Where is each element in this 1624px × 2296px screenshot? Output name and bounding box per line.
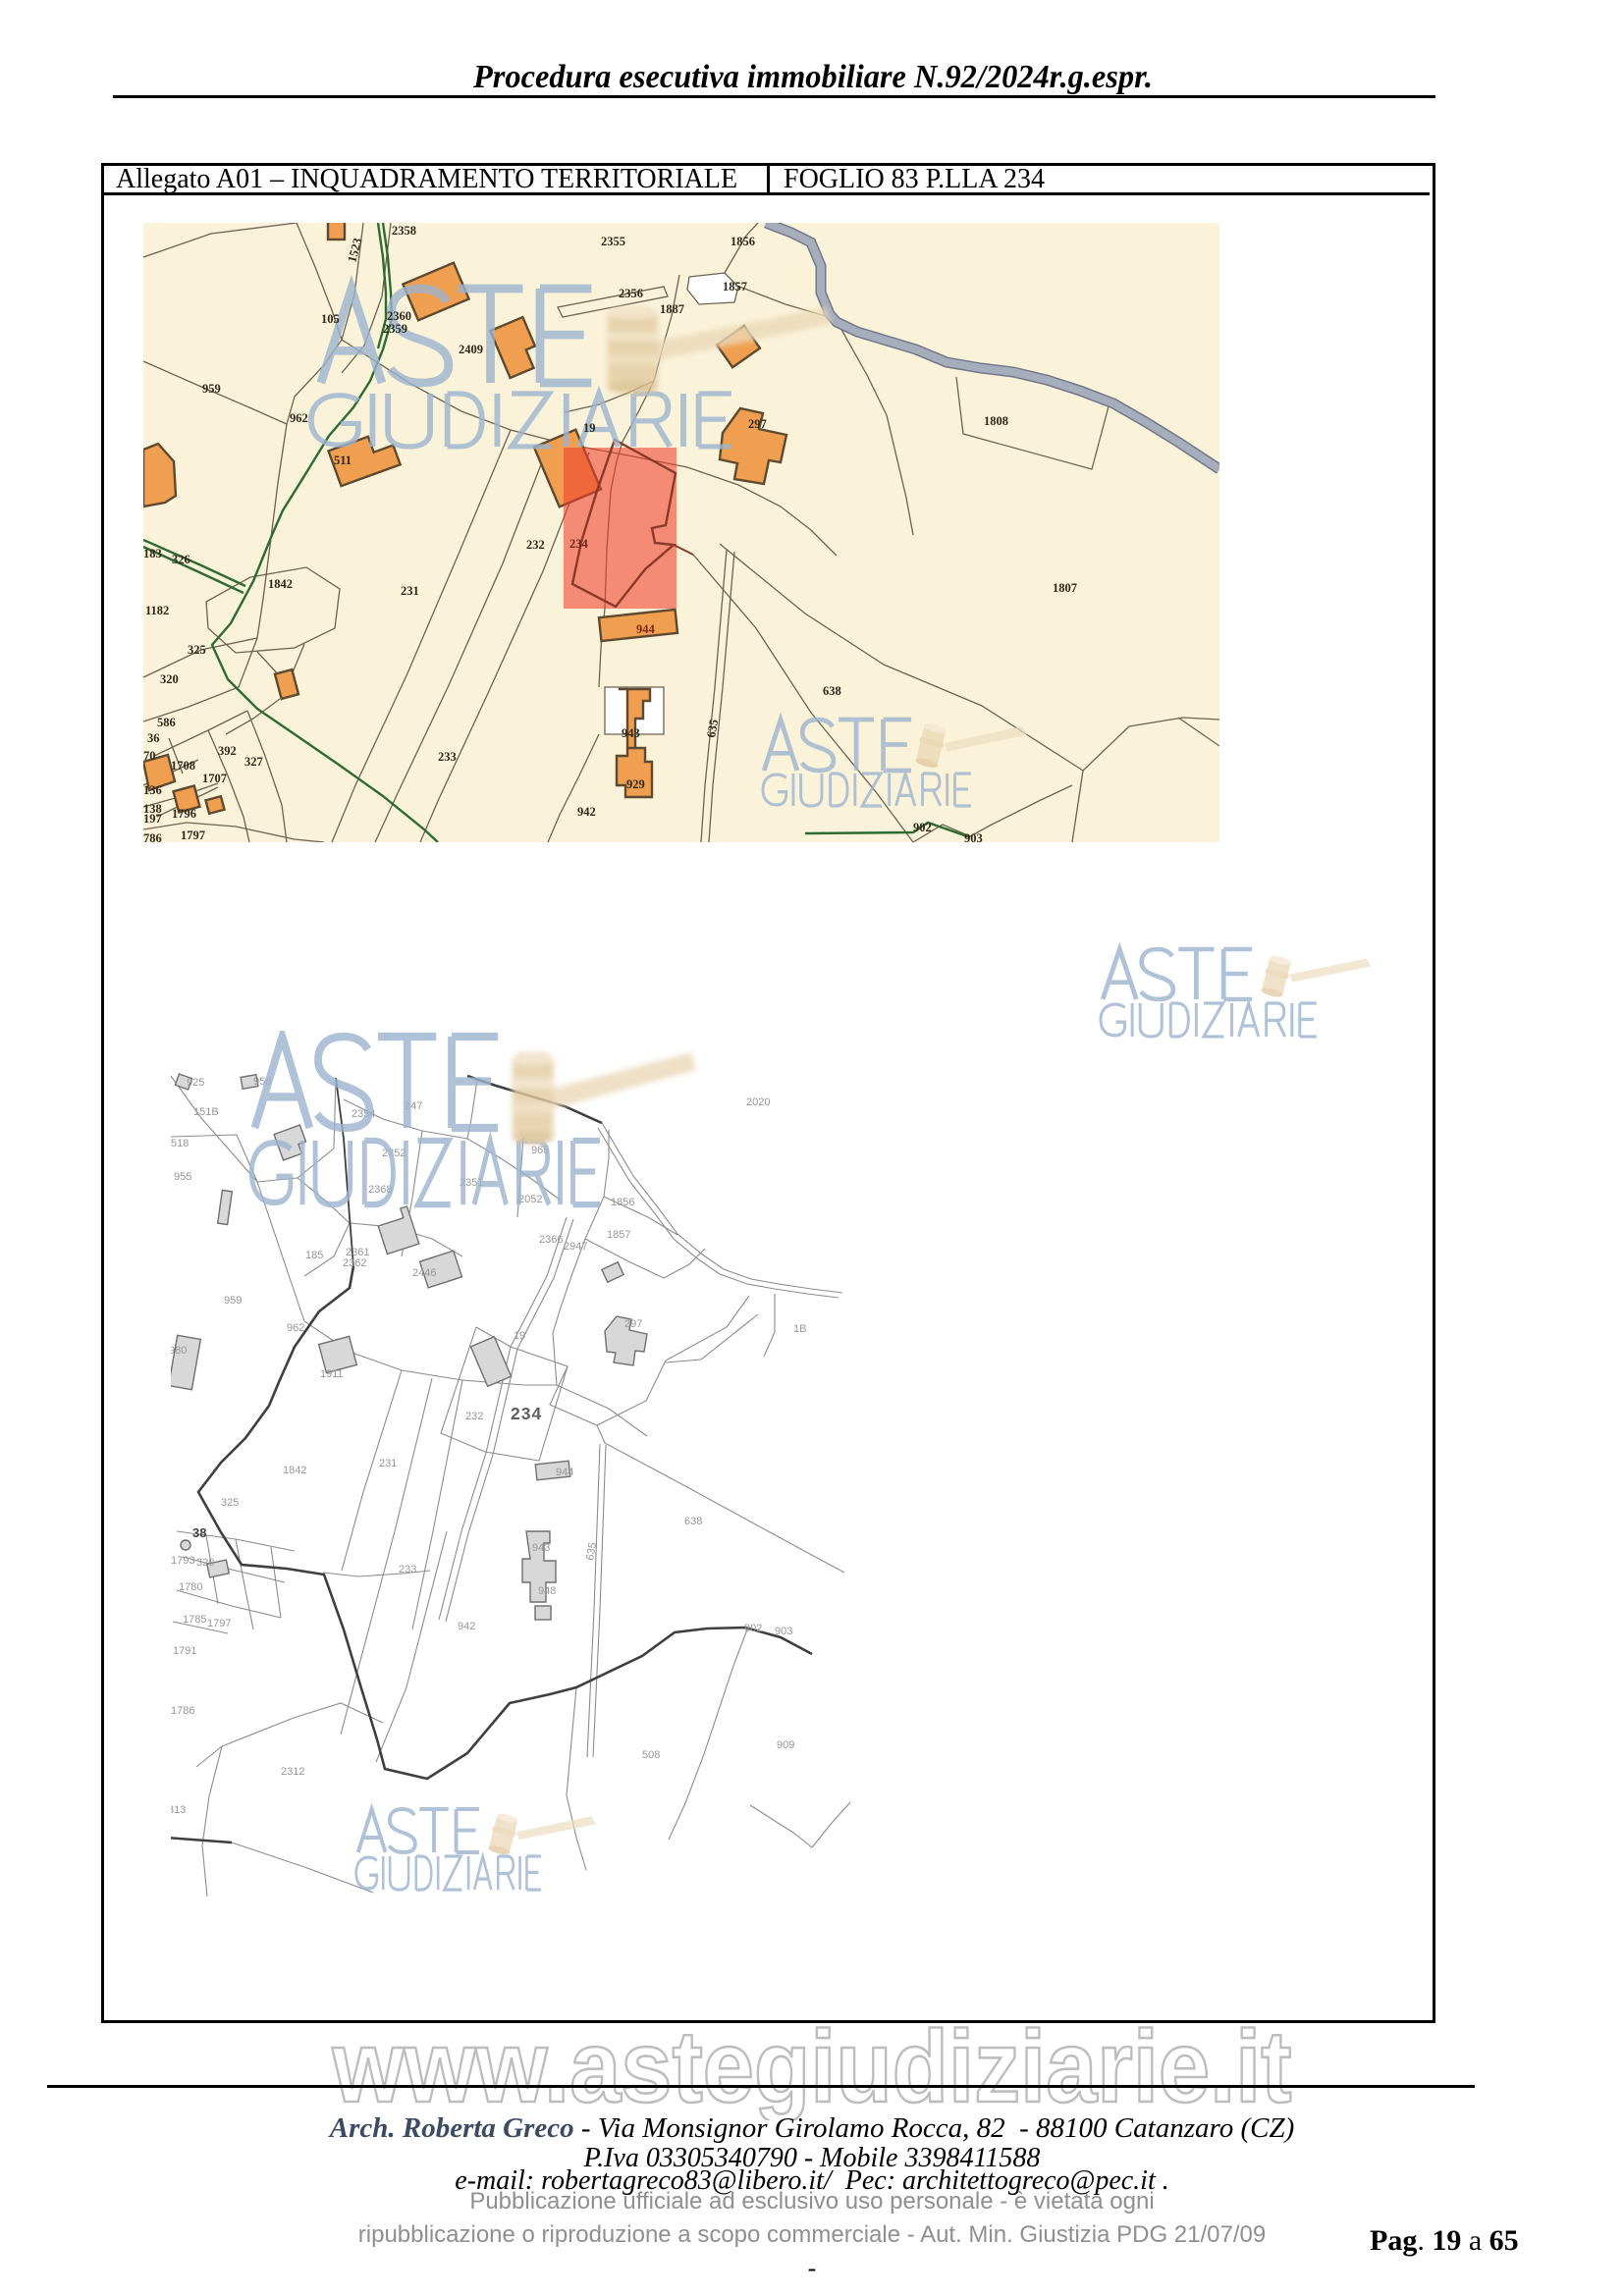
svg-text:786: 786 — [143, 831, 162, 842]
svg-text:2366: 2366 — [539, 1234, 563, 1246]
svg-text:1182: 1182 — [145, 604, 169, 617]
svg-text:903: 903 — [775, 1626, 792, 1637]
svg-text:232: 232 — [465, 1411, 483, 1422]
svg-text:234: 234 — [569, 537, 589, 551]
svg-text:1857: 1857 — [723, 280, 747, 294]
svg-text:942: 942 — [577, 805, 596, 819]
svg-text:959: 959 — [224, 1295, 242, 1307]
svg-text:232: 232 — [526, 538, 545, 552]
svg-text:942: 942 — [458, 1621, 475, 1632]
svg-text:1842: 1842 — [268, 577, 293, 591]
svg-text:948: 948 — [538, 1585, 556, 1597]
svg-text:297: 297 — [748, 417, 767, 431]
svg-text:197: 197 — [143, 812, 162, 826]
svg-text:508: 508 — [642, 1749, 660, 1761]
svg-text:183: 183 — [143, 547, 162, 561]
svg-text:2312: 2312 — [281, 1766, 304, 1778]
svg-text:1796: 1796 — [172, 807, 196, 821]
svg-text:326: 326 — [172, 553, 190, 566]
svg-text:903: 903 — [964, 831, 983, 842]
svg-text:1791: 1791 — [173, 1645, 196, 1657]
svg-text:2356: 2356 — [619, 287, 643, 300]
svg-text:Procedura esecutiva immobiliar: Procedura esecutiva immobiliare N.92/202… — [472, 59, 1153, 95]
svg-text:136: 136 — [143, 783, 162, 797]
svg-text:980: 980 — [171, 1345, 187, 1357]
svg-text:327: 327 — [244, 755, 263, 769]
svg-text:925: 925 — [187, 1077, 204, 1089]
svg-text:1793: 1793 — [171, 1555, 194, 1567]
svg-text:1808: 1808 — [984, 414, 1008, 428]
svg-text:325: 325 — [221, 1497, 239, 1509]
svg-text:2052: 2052 — [518, 1194, 542, 1205]
svg-text:105: 105 — [321, 312, 340, 326]
svg-text:297: 297 — [624, 1318, 642, 1330]
svg-text:320: 320 — [196, 1557, 214, 1569]
svg-text:943: 943 — [622, 726, 640, 740]
svg-text:902: 902 — [744, 1623, 762, 1634]
svg-text:1780: 1780 — [179, 1581, 202, 1593]
svg-text:962: 962 — [287, 1322, 304, 1334]
svg-text:1911: 1911 — [320, 1368, 344, 1380]
svg-text:1856: 1856 — [731, 235, 755, 248]
svg-text:586: 586 — [157, 716, 176, 729]
svg-text:1797: 1797 — [181, 828, 205, 842]
svg-text:151B: 151B — [193, 1106, 219, 1118]
svg-text:1786: 1786 — [171, 1705, 194, 1717]
svg-text:233: 233 — [438, 750, 457, 764]
svg-text:1842: 1842 — [283, 1465, 306, 1476]
svg-text:1887: 1887 — [660, 302, 684, 316]
svg-text:19: 19 — [514, 1330, 525, 1342]
svg-text:38: 38 — [192, 1525, 206, 1540]
svg-text:234: 234 — [511, 1404, 542, 1423]
svg-text:325: 325 — [188, 643, 206, 657]
svg-text:944: 944 — [556, 1467, 573, 1478]
svg-text:2360: 2360 — [387, 309, 411, 323]
svg-text:955: 955 — [174, 1171, 191, 1183]
svg-text:962: 962 — [290, 411, 308, 425]
svg-text:511: 511 — [334, 454, 352, 467]
svg-text:518: 518 — [171, 1138, 189, 1149]
svg-text:944: 944 — [636, 622, 656, 636]
svg-text:2020: 2020 — [746, 1096, 770, 1108]
svg-text:2947: 2947 — [564, 1241, 587, 1253]
svg-text:320: 320 — [160, 672, 179, 686]
svg-text:902: 902 — [913, 821, 932, 834]
svg-text:233: 233 — [399, 1564, 416, 1575]
svg-text:635: 635 — [584, 1541, 599, 1561]
svg-text:638: 638 — [823, 684, 841, 698]
svg-text:1785: 1785 — [183, 1614, 206, 1626]
svg-text:1708: 1708 — [171, 759, 195, 773]
svg-text:1857: 1857 — [607, 1229, 630, 1241]
svg-text:638: 638 — [684, 1516, 702, 1527]
svg-text:1B: 1B — [793, 1323, 806, 1335]
svg-text:2362: 2362 — [343, 1257, 366, 1269]
svg-text:231: 231 — [401, 584, 419, 598]
svg-text:909: 909 — [777, 1739, 794, 1751]
svg-text:70: 70 — [143, 749, 156, 763]
svg-text:943: 943 — [532, 1542, 550, 1554]
svg-text:392: 392 — [218, 744, 237, 758]
svg-text:19: 19 — [583, 421, 596, 435]
svg-text:959: 959 — [202, 382, 221, 396]
svg-text:231: 231 — [379, 1458, 397, 1469]
svg-text:1807: 1807 — [1053, 581, 1077, 595]
svg-text:2358: 2358 — [392, 224, 416, 238]
svg-text:2446: 2446 — [412, 1267, 436, 1279]
svg-text:185: 185 — [305, 1250, 323, 1261]
svg-text:313: 313 — [171, 1804, 186, 1816]
svg-text:www.astegiudiziarie.it: www.astegiudiziarie.it — [332, 2012, 1292, 2120]
svg-text:1856: 1856 — [611, 1197, 634, 1208]
svg-text:2409: 2409 — [459, 343, 483, 356]
svg-text:929: 929 — [626, 777, 645, 791]
svg-text:2355: 2355 — [601, 235, 625, 248]
svg-text:36: 36 — [147, 731, 160, 745]
svg-text:2359: 2359 — [383, 322, 407, 336]
svg-text:1707: 1707 — [202, 772, 227, 785]
svg-text:1797: 1797 — [207, 1618, 231, 1629]
